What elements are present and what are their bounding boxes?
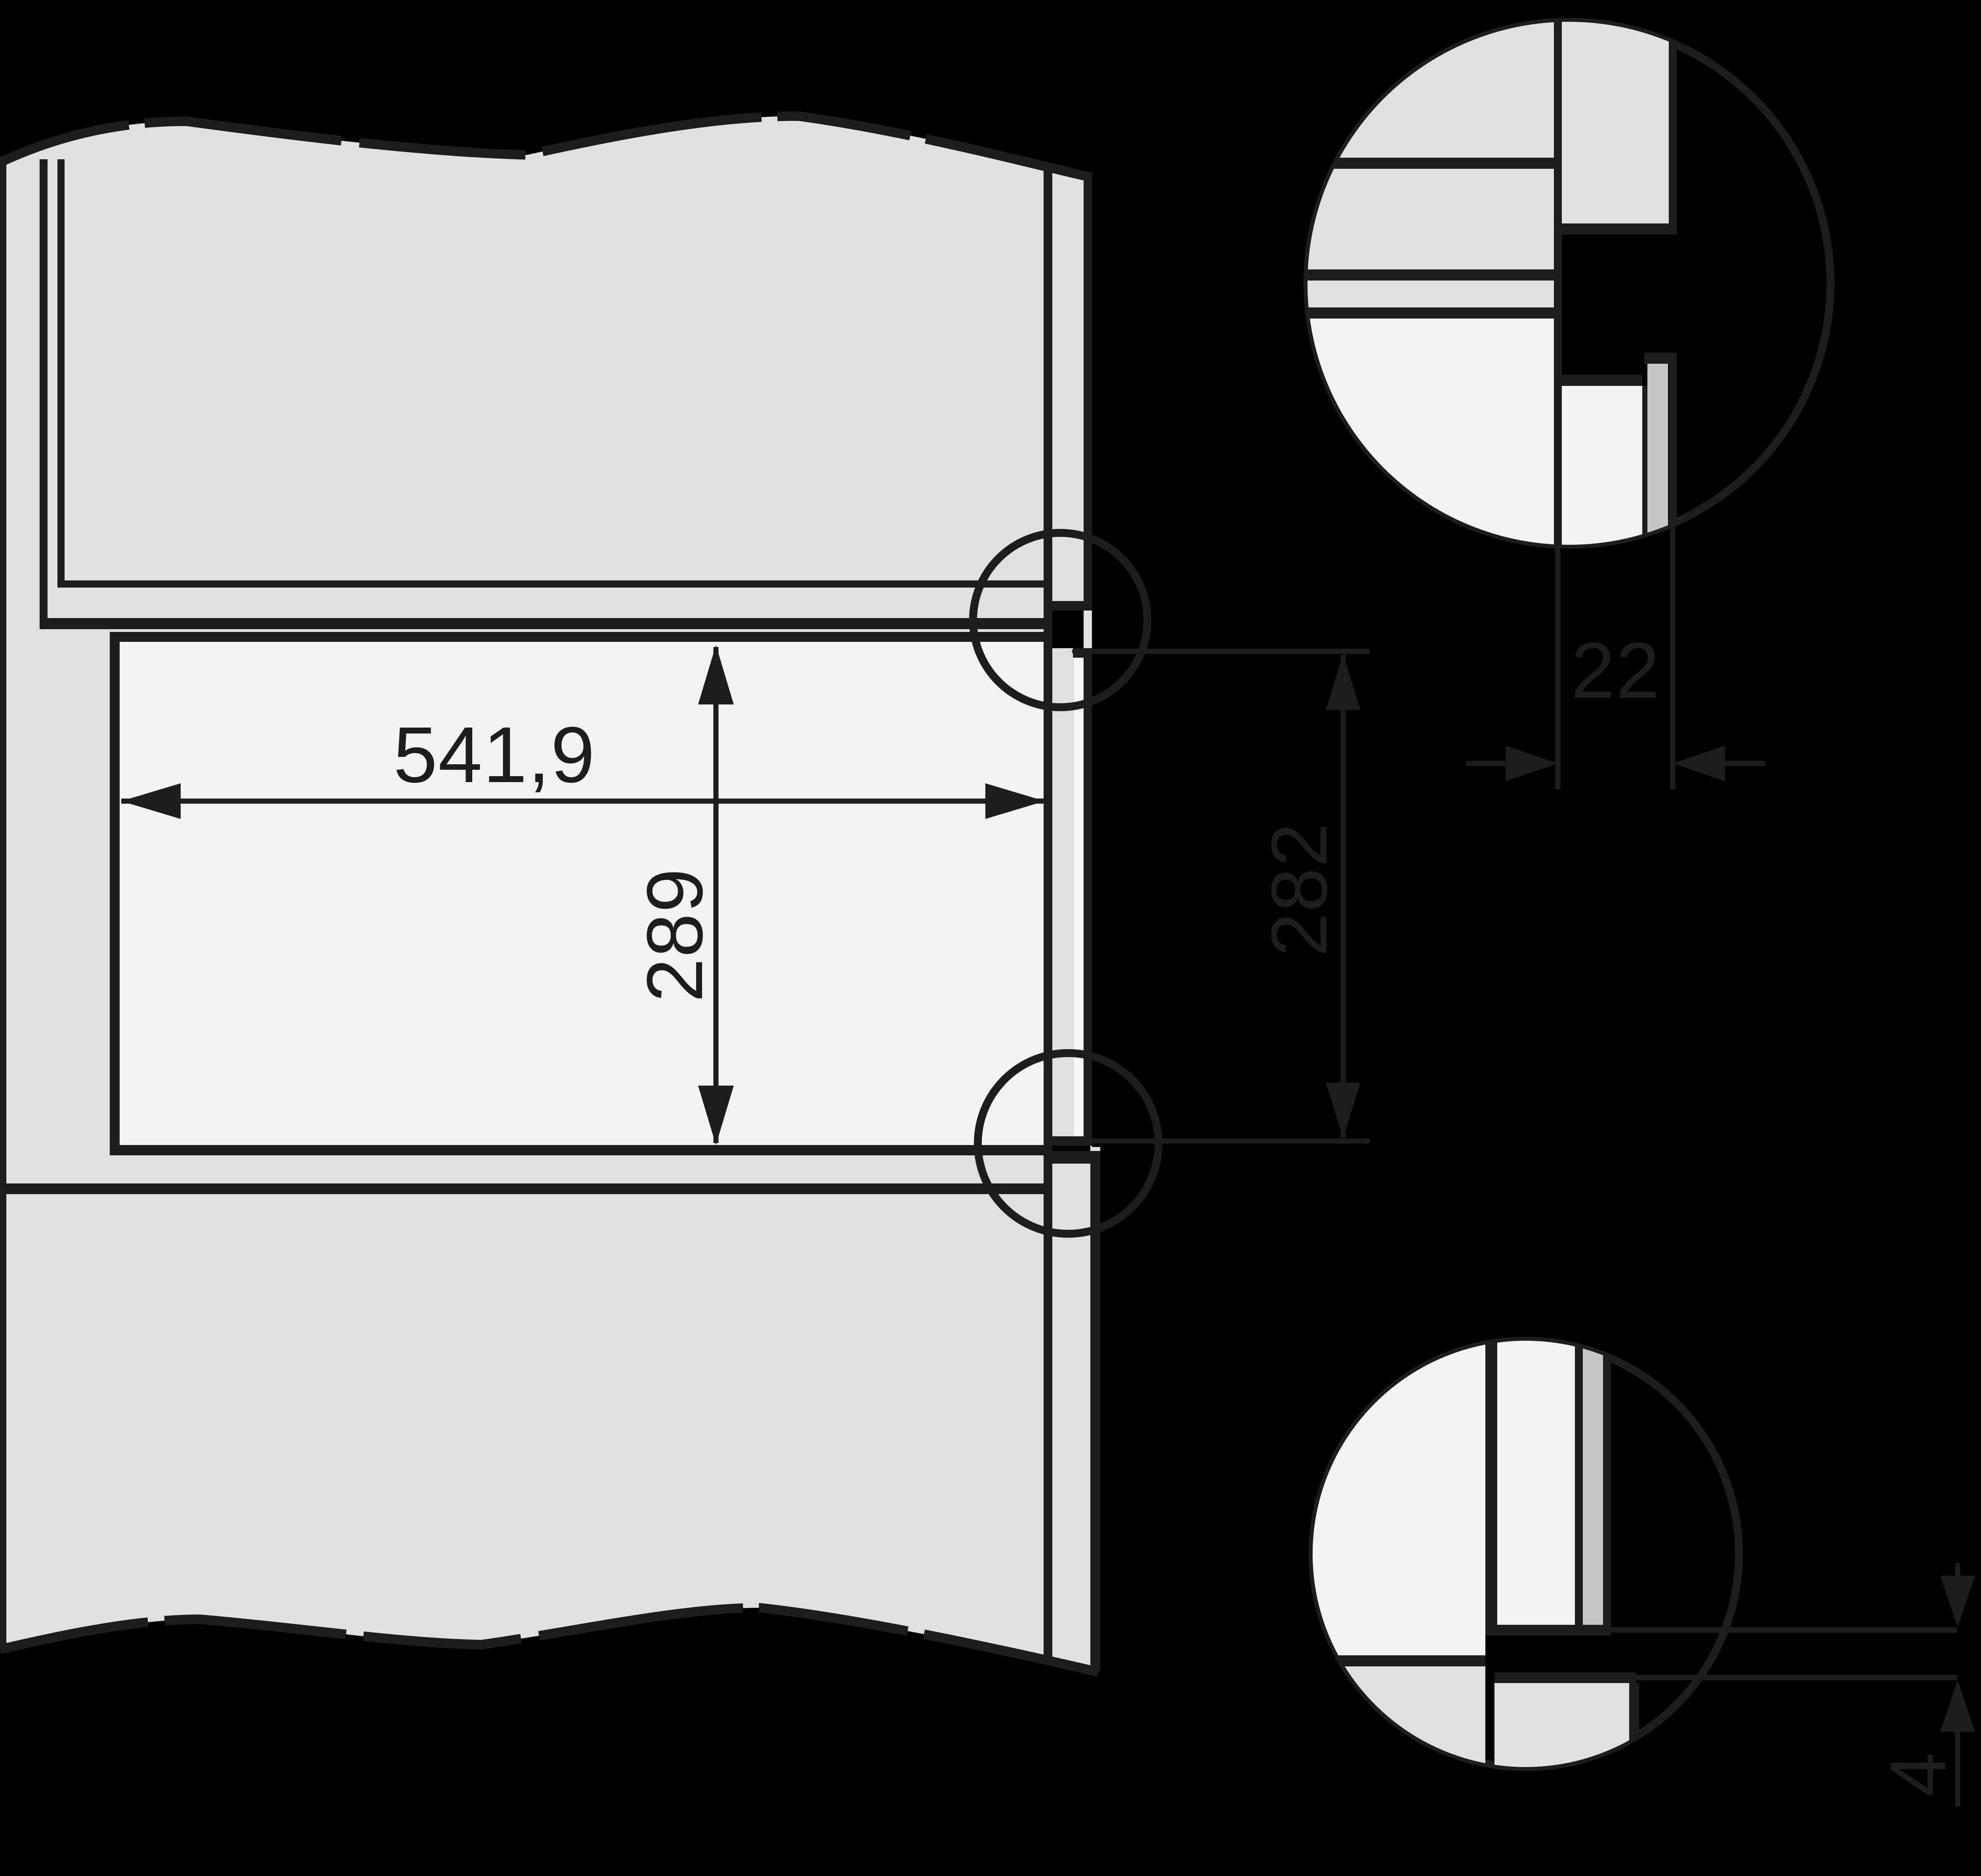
appliance-top-panel [1562, 386, 1642, 548]
shelf-bottom-line [40, 618, 1052, 629]
dimension-label-front-height: 282 [1255, 822, 1344, 957]
left-outer-edge-line [0, 158, 6, 1650]
dimension-label-niche-width: 541,9 [393, 711, 596, 799]
niche-bottom-border [110, 1145, 1052, 1155]
technical-drawing: 541,9 289 282 [0, 0, 1981, 1876]
side-panel-line-outer [40, 159, 48, 629]
drawer-front-top-cap [1494, 1672, 1636, 1683]
shelf-line-upper [1307, 269, 1558, 281]
panel-left-edge [1554, 22, 1562, 545]
appliance-trim-strip [1647, 364, 1668, 548]
appliance-top-cap [1554, 375, 1642, 386]
rail-right-border-upper [1084, 170, 1092, 611]
rail-cap-top-gap-upper [1044, 601, 1092, 611]
door-bottom-cap [1485, 1625, 1611, 1636]
rail-right-border-middle [1084, 648, 1092, 1146]
filler-panel-right-edge [1669, 22, 1677, 235]
filler-panel [1562, 22, 1669, 223]
door-left-edge [1485, 1341, 1497, 1625]
niche-top-border [110, 632, 1052, 642]
base-cabinet-top-line [0, 1183, 1052, 1194]
side-panel-line-inner [57, 159, 65, 588]
trim-edge [1603, 1341, 1611, 1625]
bottom-ventilation-gap [1052, 1146, 1090, 1151]
dimension-label-bottom-gap: 4 [1874, 1752, 1962, 1796]
niche-left-border [110, 632, 120, 1155]
rail-left-border [1044, 159, 1052, 1670]
door-trim-strip [1583, 1341, 1603, 1625]
appliance-door-panel [1497, 1341, 1575, 1625]
shelf-top-line [57, 580, 1052, 588]
dimension-label-niche-height: 289 [631, 868, 719, 1002]
trim-right-edge [1669, 353, 1677, 548]
top-ventilation-gap [1052, 611, 1084, 648]
rail-cap-bottom-gap-lower [1052, 1151, 1100, 1164]
door-panel-edge [1575, 1341, 1583, 1625]
countertop-line [1307, 158, 1558, 169]
shelf-line-lower [1307, 307, 1558, 319]
filler-panel-bottom-cap [1554, 223, 1677, 235]
appliance-front-edge [1074, 658, 1083, 1136]
dimension-label-panel-thickness: 22 [1571, 626, 1660, 715]
main-section-view [0, 111, 1105, 1680]
